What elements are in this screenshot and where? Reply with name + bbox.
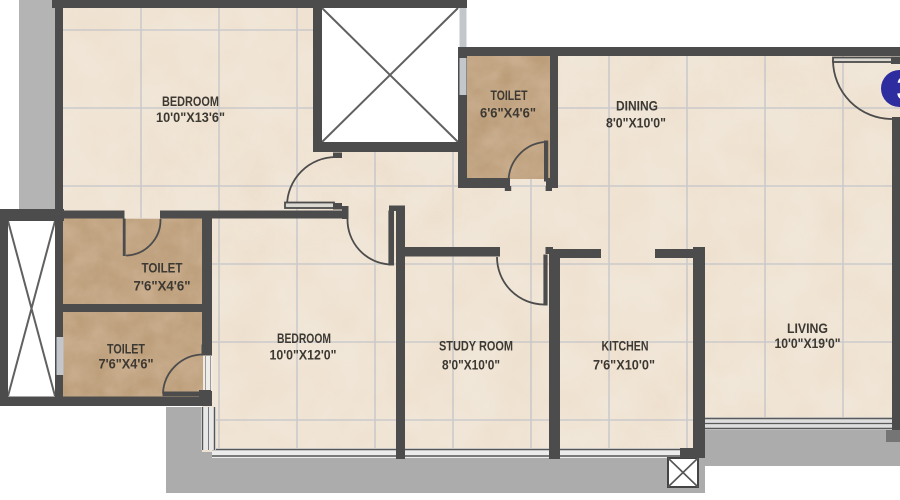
svg-text:10'0"X12'0": 10'0"X12'0" — [270, 347, 337, 363]
svg-text:LIVING: LIVING — [787, 320, 828, 336]
svg-text:STUDY ROOM: STUDY ROOM — [439, 338, 513, 354]
svg-text:BEDROOM: BEDROOM — [277, 330, 331, 346]
svg-text:7'6"X4'6": 7'6"X4'6" — [134, 279, 191, 294]
svg-text:KITCHEN: KITCHEN — [602, 338, 649, 354]
svg-text:TOILET: TOILET — [142, 261, 184, 276]
svg-text:10'0"X19'0": 10'0"X19'0" — [775, 335, 841, 351]
svg-text:7'6"X4'6": 7'6"X4'6" — [99, 357, 154, 372]
svg-text:7'6"X10'0": 7'6"X10'0" — [593, 357, 655, 373]
svg-text:8'0"X10'0": 8'0"X10'0" — [606, 115, 666, 131]
svg-text:8'0"X10'0": 8'0"X10'0" — [442, 357, 500, 373]
svg-text:3: 3 — [897, 70, 900, 108]
svg-text:DINING: DINING — [616, 98, 658, 114]
svg-text:6'6"X4'6": 6'6"X4'6" — [480, 106, 536, 121]
svg-text:BEDROOM: BEDROOM — [162, 93, 219, 109]
svg-text:10'0"X13'6": 10'0"X13'6" — [156, 109, 225, 125]
svg-text:TOILET: TOILET — [491, 88, 529, 103]
svg-text:TOILET: TOILET — [107, 342, 146, 357]
